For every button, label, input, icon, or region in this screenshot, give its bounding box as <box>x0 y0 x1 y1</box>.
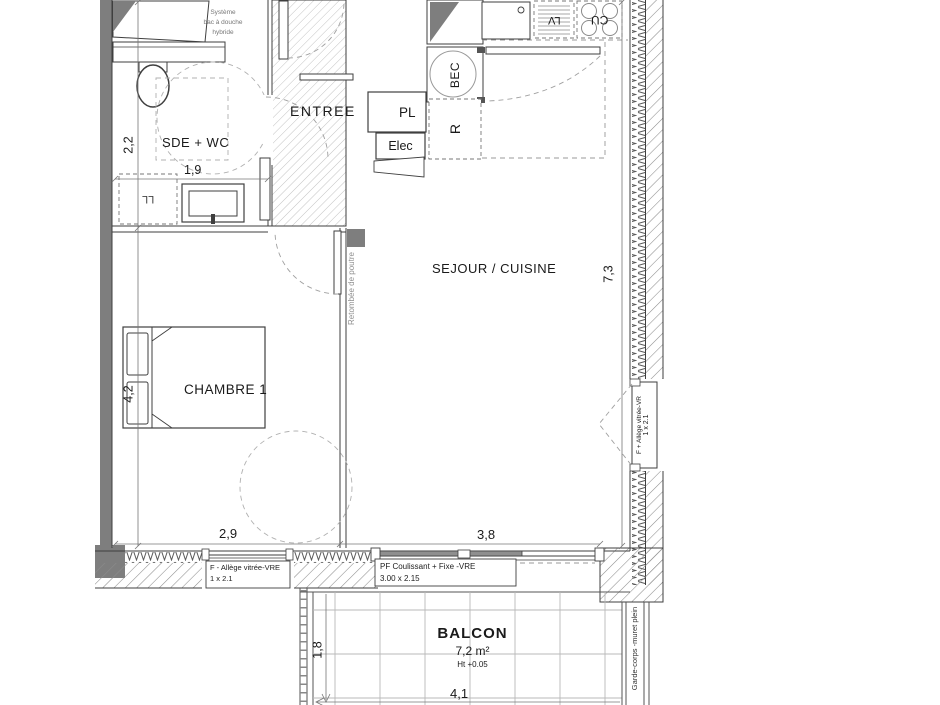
window-chambre-label: F - Allège vitrée-VRE 1 x 2.1 <box>207 561 295 587</box>
dim-balcon-depth: 1,8 <box>308 628 328 672</box>
closet-pl <box>368 92 426 132</box>
window-right-label: F + Allège vitrée-VR 1 x 2.1 <box>629 382 657 468</box>
right-exterior-wall <box>629 0 665 585</box>
elec-label: Elec <box>376 133 425 159</box>
bec-label: BEC <box>427 47 483 102</box>
washer-label: LL <box>119 174 177 224</box>
fridge-label: R <box>429 99 481 159</box>
dim-balcon-width: 4,1 <box>450 686 468 701</box>
dim-chambre-depth: 4,2 <box>118 372 140 416</box>
door-leaf-kitchen <box>486 47 600 54</box>
dim-chambre-width: 2,9 <box>219 526 237 541</box>
window-right-line1: F + Allège vitrée-VR <box>636 396 643 454</box>
floorplan: SDE + WC ENTREE SEJOUR / CUISINE CHAMBRE… <box>0 0 940 705</box>
dim-sde-width: 1,9 <box>184 163 201 177</box>
room-label-balcon: BALCON <box>395 625 550 642</box>
room-label-sde: SDE + WC <box>162 135 229 150</box>
party-wall <box>95 0 125 578</box>
balcon-area: 7,2 m² <box>395 644 550 658</box>
door-leaf-chambre <box>334 231 341 294</box>
room-label-chambre: CHAMBRE 1 <box>184 382 267 397</box>
beam-annotation: Retombée de poutre <box>343 238 359 338</box>
window-sejour-label: PF Coulissant + Fixe -VRE 3.00 x 2.15 <box>377 559 522 586</box>
closet-pl-label: PL <box>399 105 416 120</box>
toilet <box>137 65 169 107</box>
guardrail-annotation: Garde-corps -muret plein <box>626 592 644 704</box>
door-leaf-sde <box>260 158 270 220</box>
window-right-line2: 1 x 2.1 <box>643 396 650 454</box>
shower-note: Système bac à douche hybride <box>188 8 258 37</box>
dim-sejour-window-width: 3,8 <box>477 527 495 542</box>
cooktop-label: CU <box>577 1 622 38</box>
dim-sde-depth: 2,2 <box>118 123 140 167</box>
dishwasher-label: LV <box>534 1 574 38</box>
room-label-sejour: SEJOUR / CUISINE <box>432 261 556 276</box>
balcon-height-note: Ht +0.05 <box>395 660 550 669</box>
dim-sejour-depth: 7,3 <box>598 252 620 296</box>
room-label-entree: ENTREE <box>290 103 356 119</box>
